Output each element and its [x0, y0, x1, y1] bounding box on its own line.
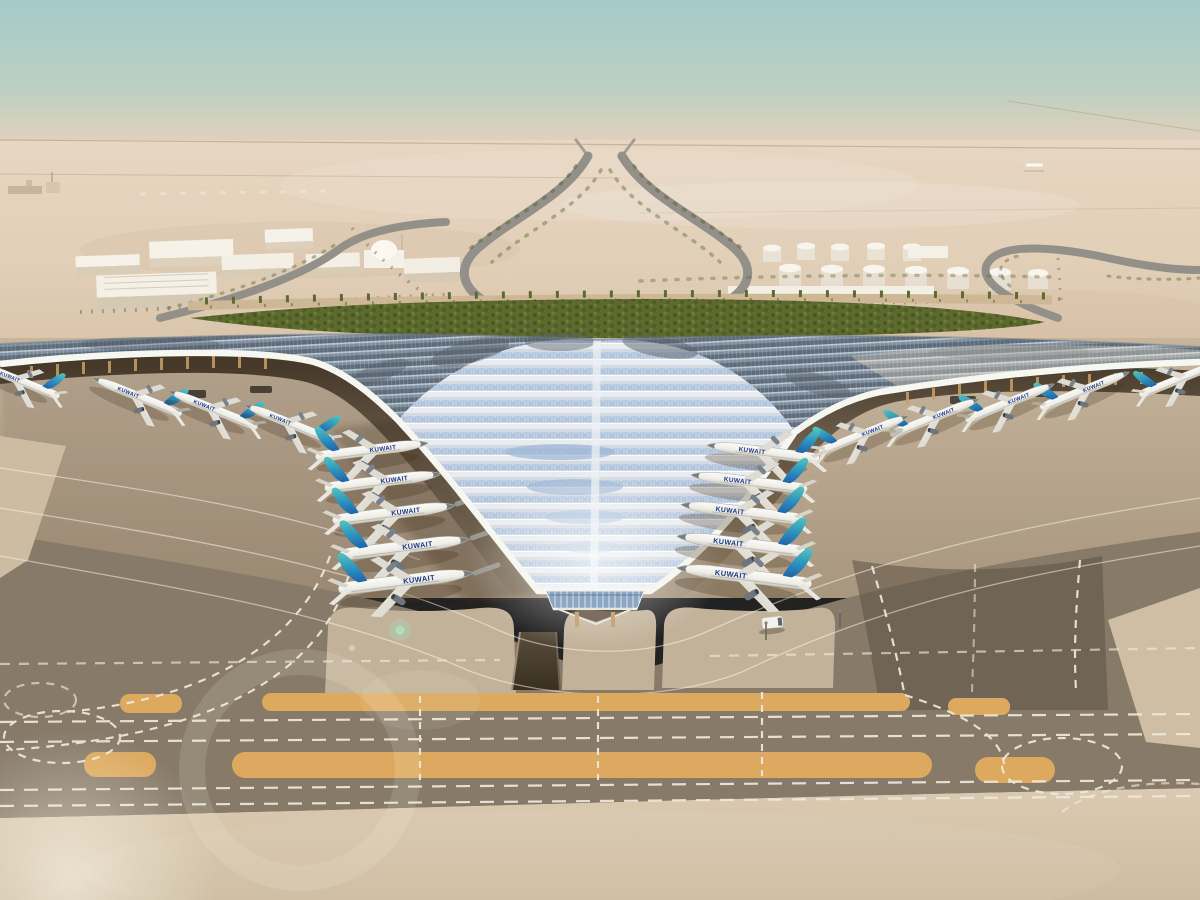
airport-rendering: KUWAIT KUWAIT KUWAIT KUWAIT KUWAIT KUWAI…	[0, 0, 1200, 900]
runway-connector	[852, 556, 1108, 710]
sky	[0, 0, 1200, 160]
rendering-canvas: KUWAIT KUWAIT KUWAIT KUWAIT KUWAIT KUWAI…	[0, 0, 1200, 900]
